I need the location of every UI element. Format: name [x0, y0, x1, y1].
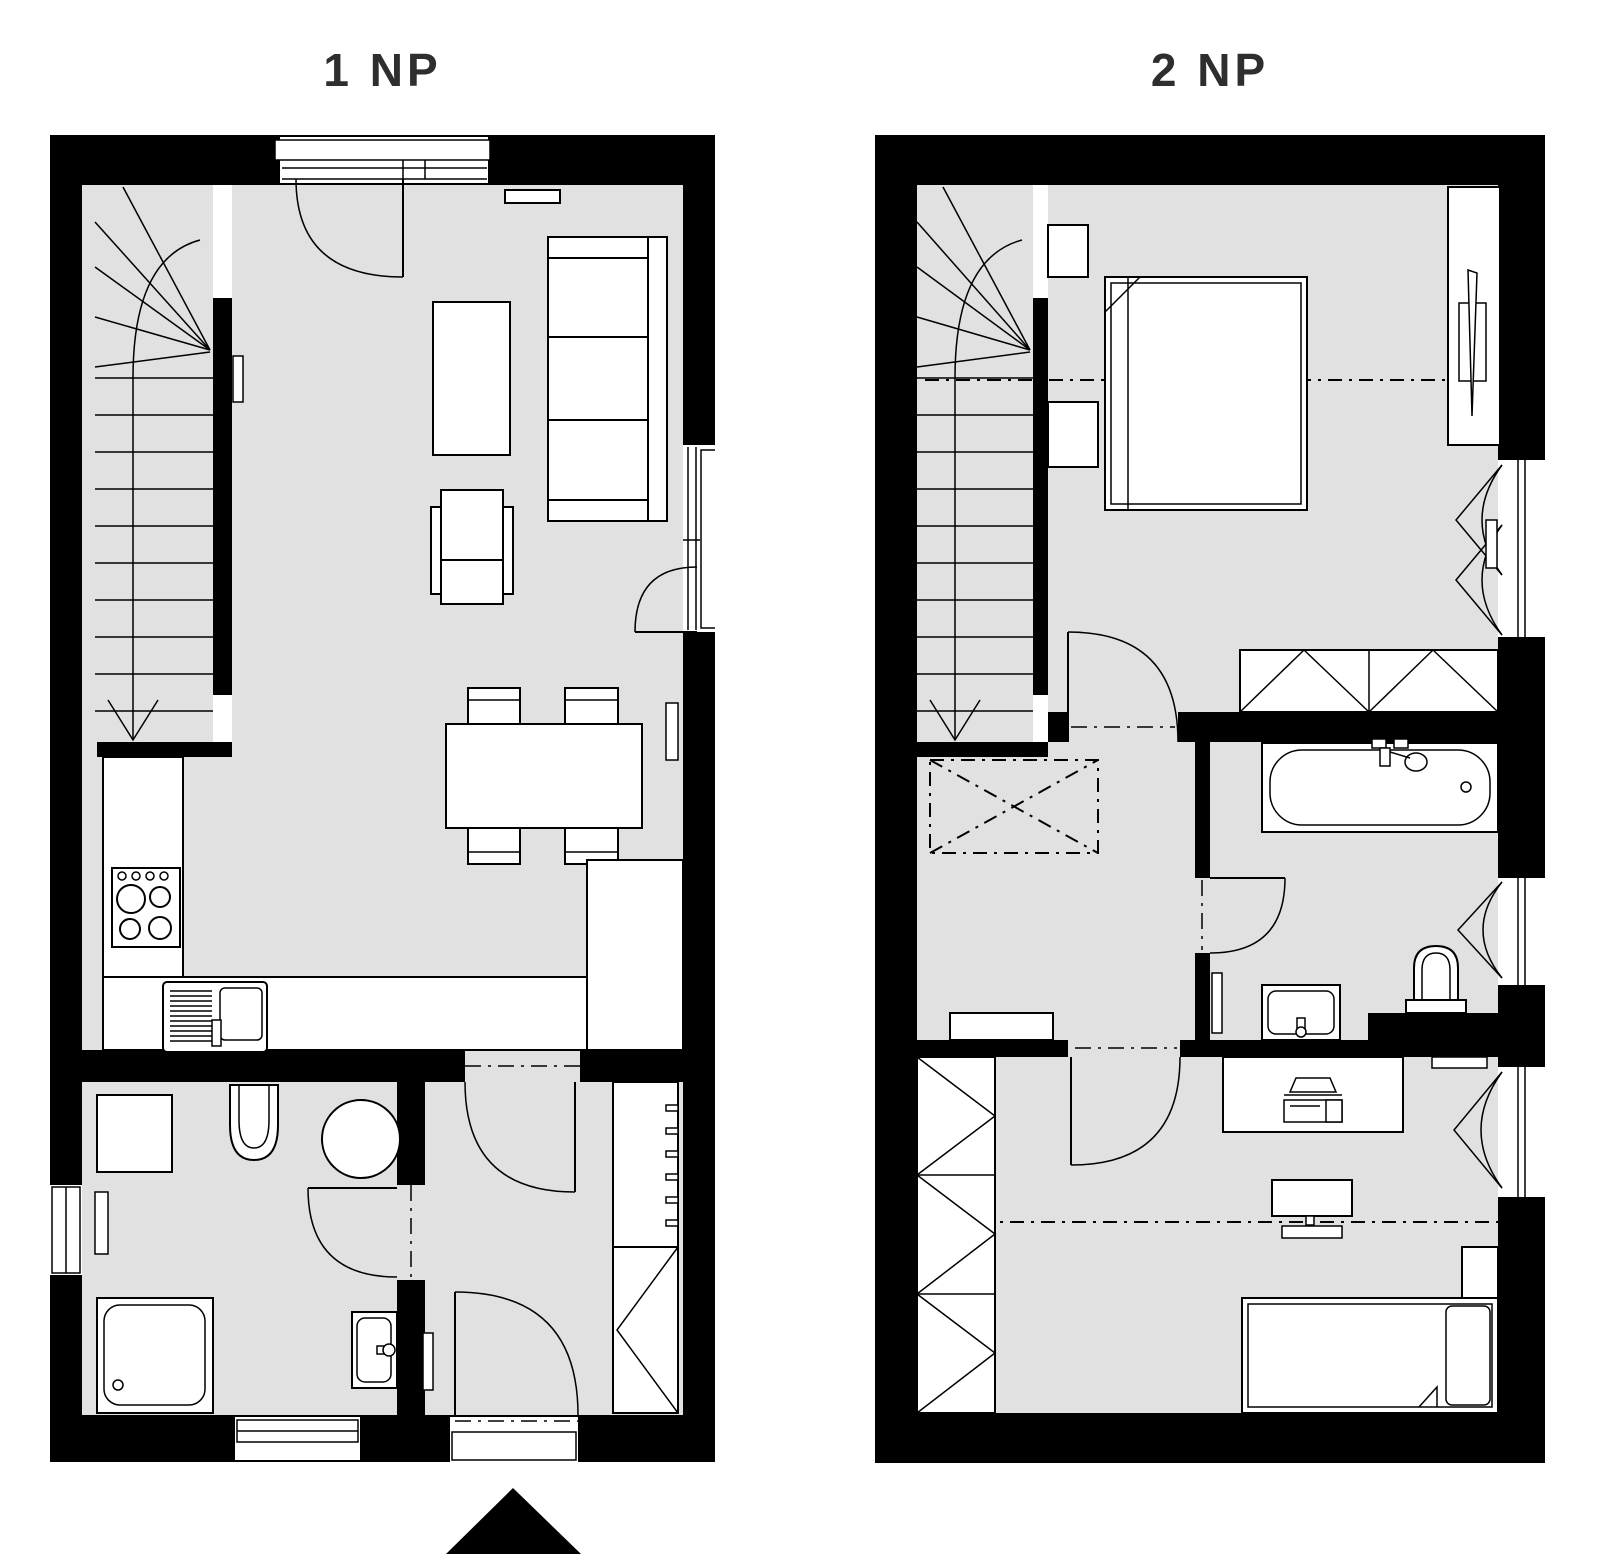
- armchair: [431, 490, 513, 604]
- double-bed: [1105, 277, 1307, 510]
- tv-shelf: [505, 190, 560, 203]
- tall-cabinet: [587, 860, 683, 1050]
- radiator-living: [666, 703, 678, 760]
- toilet-1np: [230, 1085, 278, 1160]
- plan-title-1np: 1 NP: [50, 42, 715, 98]
- radiator-bathroom: [95, 1192, 108, 1254]
- window-bay: [1448, 187, 1500, 445]
- single-bed: [1242, 1298, 1498, 1413]
- washbasin-1np: [352, 1312, 397, 1388]
- plan-title-2np: 2 NP: [875, 42, 1545, 98]
- wardrobe-bedroom: [1240, 650, 1498, 712]
- radiator-hall: [423, 1333, 433, 1390]
- bathtub: [1262, 739, 1498, 832]
- radiator-kids-room: [1432, 1057, 1487, 1068]
- floor-plan-sheet: 1 NP 2 NP: [0, 0, 1600, 1562]
- monitor: [1272, 1180, 1352, 1238]
- radiator-bathroom-2np: [1212, 973, 1222, 1033]
- landing-shelf: [950, 1013, 1053, 1040]
- kitchen-sink: [163, 982, 267, 1052]
- washing-machine: [322, 1100, 400, 1178]
- floor-plan-2np: [875, 135, 1545, 1463]
- wardrobe-hall: [613, 1247, 678, 1413]
- stove: [112, 868, 180, 947]
- shower: [97, 1298, 213, 1413]
- desk: [1223, 1057, 1403, 1132]
- closet-kids-room: [917, 1057, 995, 1413]
- entrance-arrow: [446, 1488, 581, 1554]
- nightstand-kids: [1462, 1247, 1498, 1298]
- nightstand-2: [1048, 402, 1098, 467]
- floor-plan-1np: [50, 135, 715, 1555]
- coffee-table: [433, 302, 510, 455]
- nightstand-1: [1048, 225, 1088, 277]
- washbasin-2np: [1262, 985, 1340, 1040]
- dining-table: [446, 724, 642, 828]
- sofa: [548, 237, 667, 521]
- bathroom-cabinet: [97, 1095, 172, 1172]
